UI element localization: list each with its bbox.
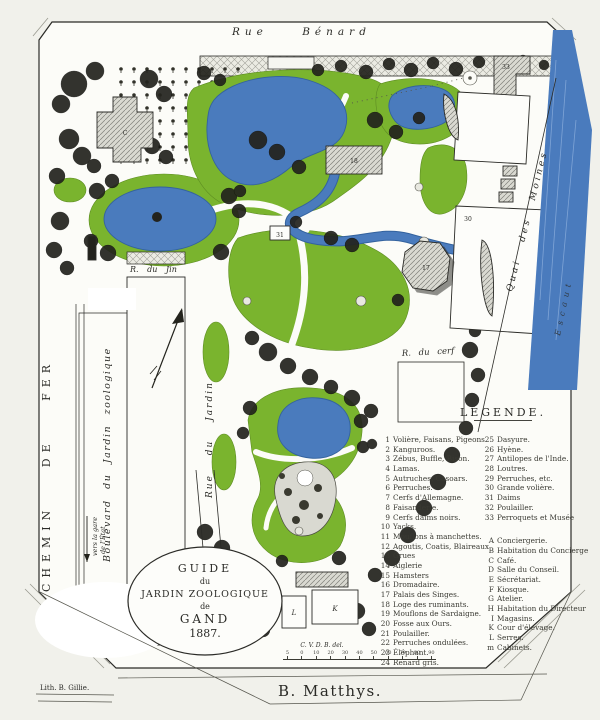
legend-item-label: Mouflons à manchettes. — [393, 532, 482, 542]
legend-row: 11 Mouflons à manchettes. — [376, 532, 480, 542]
legend-item-label: Fosse aux Ours. — [393, 619, 452, 629]
legend-item-label: Volière, Faisans, Pigeons. — [393, 435, 487, 445]
legend-item-letter: E — [480, 575, 494, 585]
legend-row: 14 Aiglerie — [376, 561, 480, 571]
legend-item-number: 15 — [376, 571, 390, 581]
credit-lithographer: Lith. B. Gillie. — [40, 684, 89, 692]
legend-row: F Kiosque. — [480, 585, 598, 595]
legend-item-label: Sécrétariat. — [497, 575, 541, 585]
legend-row: 19 Mouflons de Sardaigne. — [376, 609, 480, 619]
legend-row: A Conciergerie. — [480, 536, 598, 546]
legend-row: 27 Antilopes de l'Inde. — [480, 454, 598, 464]
legend-item-number: 30 — [480, 483, 494, 493]
label-ruminants: 18 — [350, 158, 358, 165]
legend-item-label: Faisanderie. — [393, 503, 439, 513]
label-palais-singes: 17 — [422, 265, 430, 272]
legend-item-number: 25 — [480, 435, 494, 445]
roadside-building — [268, 57, 314, 69]
legend-row: 26 Hyène. — [480, 445, 598, 455]
cartouche-gand: GAND — [180, 612, 230, 626]
street-label-rue-du-jardin: Rue du Jardin — [205, 381, 215, 499]
legend-item-label: Perruches. — [393, 483, 433, 493]
legend-item-number: 5 — [376, 474, 390, 484]
legend-item-label: Grande volière. — [497, 483, 554, 493]
scale-tick-label: 10 — [312, 650, 321, 659]
legend-item-letter: C — [480, 556, 494, 566]
label-cour-elevage: K — [331, 605, 338, 613]
label-musee: 33 — [502, 64, 510, 71]
legend-item-number: 31 — [480, 493, 494, 503]
enclosure-north — [454, 92, 530, 164]
legend-item-number: 18 — [376, 600, 390, 610]
legend-item-number: 7 — [376, 493, 390, 503]
legend-item-letter: K — [480, 623, 494, 633]
legend-item-label: Poulailler. — [393, 629, 430, 639]
legend-item-label: Hyène. — [497, 445, 523, 455]
legend-item-number: 22 — [376, 638, 390, 648]
label-cafe: C — [123, 130, 128, 137]
legend-row: 7 Cerfs d'Allemagne. — [376, 493, 480, 503]
legend-item-label: Loge des ruminants. — [393, 600, 469, 610]
scale-tick-label: 50 — [369, 650, 378, 659]
legend-item-label: Magasins. — [497, 614, 535, 624]
label-grande-voliere: 30 — [464, 216, 472, 223]
legend-item-label: Mouflons de Sardaigne. — [393, 609, 481, 619]
legend-item-label: Perroquets et Musée — [497, 513, 574, 523]
legend-row: 15 Hamsters — [376, 571, 480, 581]
legend-item-label: Hamsters — [393, 571, 429, 581]
scale-tick-label: 60 — [384, 650, 393, 659]
legend-column-2: 25 Dasyure. 26 Hyène. 27 Antilopes de l'… — [480, 435, 598, 652]
legend-item-label: Salle du Conseil. — [497, 565, 559, 575]
legend-row: L Serres. — [480, 633, 598, 643]
legend-item-number: 8 — [376, 503, 390, 513]
legend-row: 10 Yacks. — [376, 522, 480, 532]
legend-title-underline — [474, 419, 532, 421]
label-serres: L — [291, 609, 297, 617]
legend-item-label: Cour d'élevage. — [497, 623, 555, 633]
cartouche-year: 1887. — [189, 627, 221, 640]
legend-item-number: 1 — [376, 435, 390, 445]
legend-item-label: Agoutis, Coatis, Blaireaux — [393, 542, 489, 552]
station-note-line1: vers la gare — [91, 517, 99, 556]
station-note-line2: de l'État — [98, 526, 107, 554]
legend-item-letter: F — [480, 585, 494, 595]
cartouche-de: de — [200, 602, 210, 611]
legend-title: LÉGENDE. — [438, 408, 568, 421]
legend-item-number: 29 — [480, 474, 494, 484]
legend-item-label: Dasyure. — [497, 435, 530, 445]
legend-item-number: 32 — [480, 503, 494, 513]
scale-tick-label: 90 — [427, 650, 436, 659]
legend-item-number: 13 — [376, 551, 390, 561]
street-label-chemin-de-fer: CHEMIN DE FER — [40, 359, 53, 592]
legend-item-number: 12 — [376, 542, 390, 552]
legend-item-letter: D — [480, 565, 494, 575]
legend-item-letter: A — [480, 536, 494, 546]
legend-row: C Café. — [480, 556, 598, 566]
scale-tick-label: 30 — [341, 650, 350, 659]
legend-item-label: Aiglerie — [393, 561, 422, 571]
legend-row: 16 Dromadaire. — [376, 580, 480, 590]
legend-item-number: 28 — [480, 464, 494, 474]
legend-row: 33 Perroquets et Musée — [480, 513, 598, 523]
legend-item-number: 2 — [376, 445, 390, 455]
scale-bar: 50102030405060708090 — [283, 650, 436, 660]
legend-item-number: 11 — [376, 532, 390, 542]
legend-row: 1 Volière, Faisans, Pigeons. — [376, 435, 480, 445]
legend-row: 8 Faisanderie. — [376, 503, 480, 513]
pond-island — [152, 212, 162, 222]
legend-row: 6 Perruches. — [376, 483, 480, 493]
legend-item-number: 27 — [480, 454, 494, 464]
legend-item-label: Dromadaire. — [393, 580, 439, 590]
cartouche-du: du — [200, 577, 210, 586]
legend-row: D Salle du Conseil. — [480, 565, 598, 575]
legend-item-number: 10 — [376, 522, 390, 532]
legend-row: G Atelier. — [480, 594, 598, 604]
legend-row: 5 Autruches, Casoars. — [376, 474, 480, 484]
legend-item-number: 33 — [480, 513, 494, 523]
street-label-r-du-jin: R. du Jin — [129, 265, 177, 274]
legend-row: 2 Kanguroos. — [376, 445, 480, 455]
legend-row: 28 Loutres. — [480, 464, 598, 474]
legend-item-label: Loutres. — [497, 464, 528, 474]
legend-item-label: Cabinets. — [497, 643, 532, 653]
legend-item-label: Perruches, etc. — [497, 474, 553, 484]
legend-row: 9 Cerfs daims noirs. — [376, 513, 480, 523]
legend-item-label: Antilopes de l'Inde. — [497, 454, 569, 464]
legend-spacer — [480, 522, 598, 536]
scale-tick-label: 40 — [355, 650, 364, 659]
legend-item-label: Daims — [497, 493, 520, 503]
legend-row: 3 Zébus, Buffle, Bison. — [376, 454, 480, 464]
legend-row: 21 Poulailler. — [376, 629, 480, 639]
legend-row: 20 Fosse aux Ours. — [376, 619, 480, 629]
cartouche-guide: GUIDE — [178, 562, 232, 575]
legend-numbered-2: 25 Dasyure. 26 Hyène. 27 Antilopes de l'… — [480, 435, 598, 522]
legend-row: 22 Perruches ondulées. — [376, 638, 480, 648]
legend-row: 12 Agoutis, Coatis, Blaireaux — [376, 542, 480, 552]
legend-item-label: Serres. — [497, 633, 524, 643]
legend-row: E Sécrétariat. — [480, 575, 598, 585]
legend-row: H Habitation du Directeur — [480, 604, 598, 614]
legend-item-label: Cerfs daims noirs. — [393, 513, 460, 523]
legend-item-label: Habitation du Directeur — [497, 604, 586, 614]
credit-delineator: C. V. D. B. del. — [300, 642, 343, 649]
legend-row: 31 Daims — [480, 493, 598, 503]
legend-item-number: 17 — [376, 590, 390, 600]
scale-tick-label: 80 — [413, 650, 422, 659]
legend-item-letter: G — [480, 594, 494, 604]
legend-row: I Magasins. — [480, 614, 598, 624]
legend-row: K Cour d'élevage. — [480, 623, 598, 633]
label-daims: 31 — [276, 232, 284, 239]
legend-item-label: Kanguroos. — [393, 445, 435, 455]
legend-item-number: 3 — [376, 454, 390, 464]
legend-item-label: Habitation du Concierge — [497, 546, 588, 556]
legend-column-1: 1 Volière, Faisans, Pigeons. 2 Kanguroos… — [376, 435, 480, 668]
legend-item-label: Cerfs d'Allemagne. — [393, 493, 463, 503]
legend-item-label: Yacks. — [393, 522, 416, 532]
legend-item-letter: I — [480, 614, 494, 624]
map-sheet: Rue Bénard — [0, 0, 600, 720]
legend-item-number: 26 — [480, 445, 494, 455]
legend-row: 32 Poulailler. — [480, 503, 598, 513]
paper-whiteout — [88, 288, 136, 310]
legend-item-label: Perruches ondulées. — [393, 638, 468, 648]
legend-row: 17 Palais des Singes. — [376, 590, 480, 600]
legend-item-number: 20 — [376, 619, 390, 629]
legend-item-label: Palais des Singes. — [393, 590, 459, 600]
cartouche-jardin: JARDIN ZOOLOGIQUE — [140, 589, 269, 600]
scale-ticks: 50102030405060708090 — [283, 650, 436, 659]
legend-letters: A Conciergerie. B Habitation du Concierg… — [480, 536, 598, 652]
legend-item-label: Conciergerie. — [497, 536, 547, 546]
legend-item-label: Lamas. — [393, 464, 420, 474]
legend-item-number: 21 — [376, 629, 390, 639]
legend-row: 30 Grande volière. — [480, 483, 598, 493]
legend-row: 18 Loge des ruminants. — [376, 600, 480, 610]
legend-row: 13 Grues — [376, 551, 480, 561]
legend-item-label: Café. — [497, 556, 516, 566]
legend-row: 29 Perruches, etc. — [480, 474, 598, 484]
scale-tick-label: 70 — [398, 650, 407, 659]
scale-tick-label: 20 — [326, 650, 335, 659]
legend-item-letter: B — [480, 546, 494, 556]
legend-item-label: Autruches, Casoars. — [393, 474, 468, 484]
legend-item-number: 4 — [376, 464, 390, 474]
scale-tick-label: 5 — [283, 650, 292, 659]
legend-item-letter: m — [480, 643, 494, 653]
legend-item-number: 6 — [376, 483, 390, 493]
credit-author: B. Matthys. — [278, 682, 382, 700]
legend-item-number: 9 — [376, 513, 390, 523]
legend-item-number: 14 — [376, 561, 390, 571]
cabinets-block — [88, 236, 96, 260]
legend-item-number: 16 — [376, 580, 390, 590]
legend-item-letter: L — [480, 633, 494, 643]
street-label-rue-benard: Rue Bénard — [231, 26, 371, 38]
legend-item-label: Poulailler. — [497, 503, 534, 513]
legend-item-label: Atelier. — [497, 594, 523, 604]
legend-title-text: LÉGENDE. — [460, 406, 546, 419]
legend-item-label: Kiosque. — [497, 585, 529, 595]
legend-item-label: Grues — [393, 551, 415, 561]
scale-tick-label: 0 — [297, 650, 306, 659]
legend-item-number: 19 — [376, 609, 390, 619]
legend-row: 4 Lamas. — [376, 464, 480, 474]
legend-row: 25 Dasyure. — [480, 435, 598, 445]
legend-row: m Cabinets. — [480, 643, 598, 653]
legend-item-letter: H — [480, 604, 494, 614]
legend-item-label: Zébus, Buffle, Bison. — [393, 454, 470, 464]
boulevard-crossing — [127, 252, 185, 264]
legend-row: B Habitation du Concierge — [480, 546, 598, 556]
scale-rule — [283, 659, 436, 660]
